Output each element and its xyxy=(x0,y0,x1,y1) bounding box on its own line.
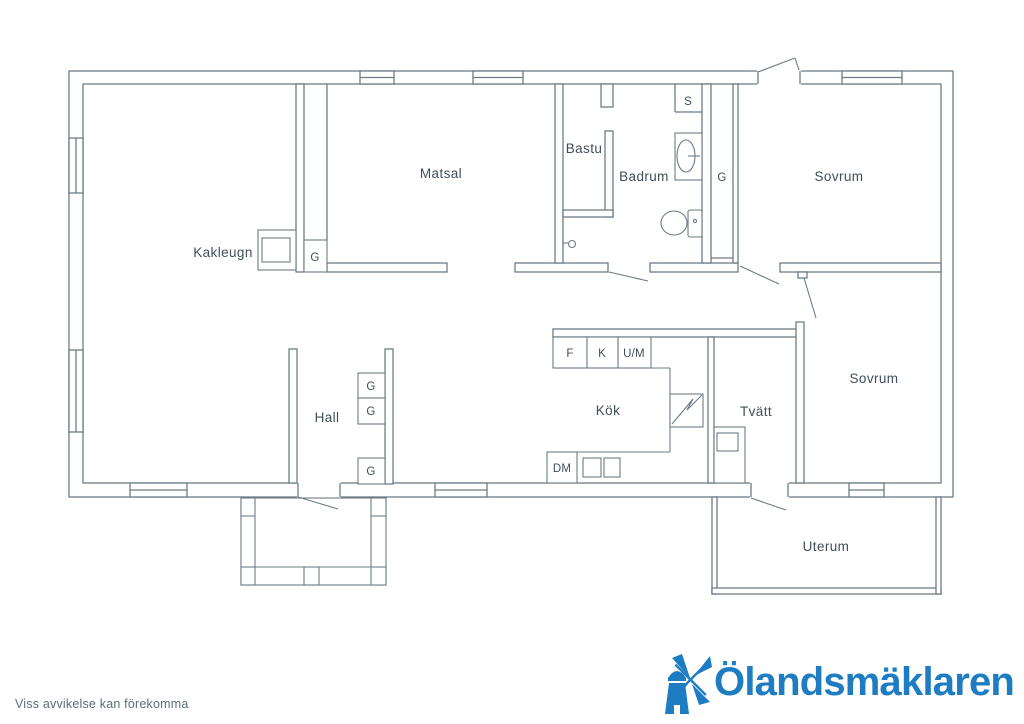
label-wardrobe-matsal: G xyxy=(310,252,319,264)
porch-pillar xyxy=(371,498,386,516)
window xyxy=(849,483,884,497)
door-leaf xyxy=(609,272,648,281)
windows xyxy=(69,71,902,497)
porch-pillar xyxy=(371,567,386,585)
window xyxy=(69,138,83,193)
porch-pillar xyxy=(241,567,255,585)
room-label-kakleugn: Kakleugn xyxy=(193,245,253,260)
floor-drain-icon xyxy=(563,238,576,249)
logo: Ölandsmäklaren xyxy=(660,650,1024,718)
room-label-tvatt: Tvätt xyxy=(740,404,772,419)
porch-pillar xyxy=(304,567,319,585)
label-freezer: K xyxy=(598,348,606,360)
sink-icon xyxy=(675,133,702,180)
laundry-unit xyxy=(714,427,745,483)
window xyxy=(842,71,902,84)
door-leaf xyxy=(804,278,816,318)
window xyxy=(69,350,83,432)
label-wardrobe-hall-1: G xyxy=(366,381,375,393)
room-label-kok: Kök xyxy=(596,403,620,418)
toilet-icon xyxy=(661,210,702,237)
label-wardrobe-corridor: G xyxy=(717,172,726,184)
electrical-panel-icon xyxy=(670,394,703,427)
kitchen-sink-icon xyxy=(583,458,620,477)
interior-door-leaves xyxy=(609,266,816,318)
label-sauna-heater: S xyxy=(684,96,692,108)
door-leaf xyxy=(298,497,338,509)
porch xyxy=(241,498,386,585)
window xyxy=(360,71,394,84)
porch-pillar xyxy=(241,498,255,516)
logo-text: Ölandsmäklaren xyxy=(714,660,1014,705)
interior-walls xyxy=(289,84,941,484)
window xyxy=(130,483,187,497)
door-leaf xyxy=(751,498,786,510)
room-label-hall: Hall xyxy=(315,410,340,425)
room-label-bastu: Bastu xyxy=(566,141,603,156)
floorplan-page: Matsal Bastu Badrum Sovrum Sovrum Kakleu… xyxy=(0,0,1024,724)
floor-plan: Matsal Bastu Badrum Sovrum Sovrum Kakleu… xyxy=(0,0,1024,724)
room-label-sovrum-1: Sovrum xyxy=(815,169,864,184)
label-oven-micro: U/M xyxy=(623,348,645,360)
windmill-icon xyxy=(660,650,712,716)
window xyxy=(473,71,523,84)
door-leaf xyxy=(740,266,779,284)
room-label-badrum: Badrum xyxy=(619,169,669,184)
tiled-stove-icon xyxy=(258,230,296,270)
label-fridge: F xyxy=(566,348,573,360)
disclaimer-text: Viss avvikelse kan förekomma xyxy=(15,697,189,711)
label-dishwasher: DM xyxy=(553,463,571,475)
room-label-sovrum-2: Sovrum xyxy=(850,371,899,386)
room-label-matsal: Matsal xyxy=(420,166,462,181)
label-wardrobe-hall-3: G xyxy=(366,466,375,478)
window xyxy=(435,483,487,497)
label-wardrobe-hall-2: G xyxy=(366,406,375,418)
room-label-uterum: Uterum xyxy=(803,539,850,554)
outer-walls xyxy=(69,71,953,497)
